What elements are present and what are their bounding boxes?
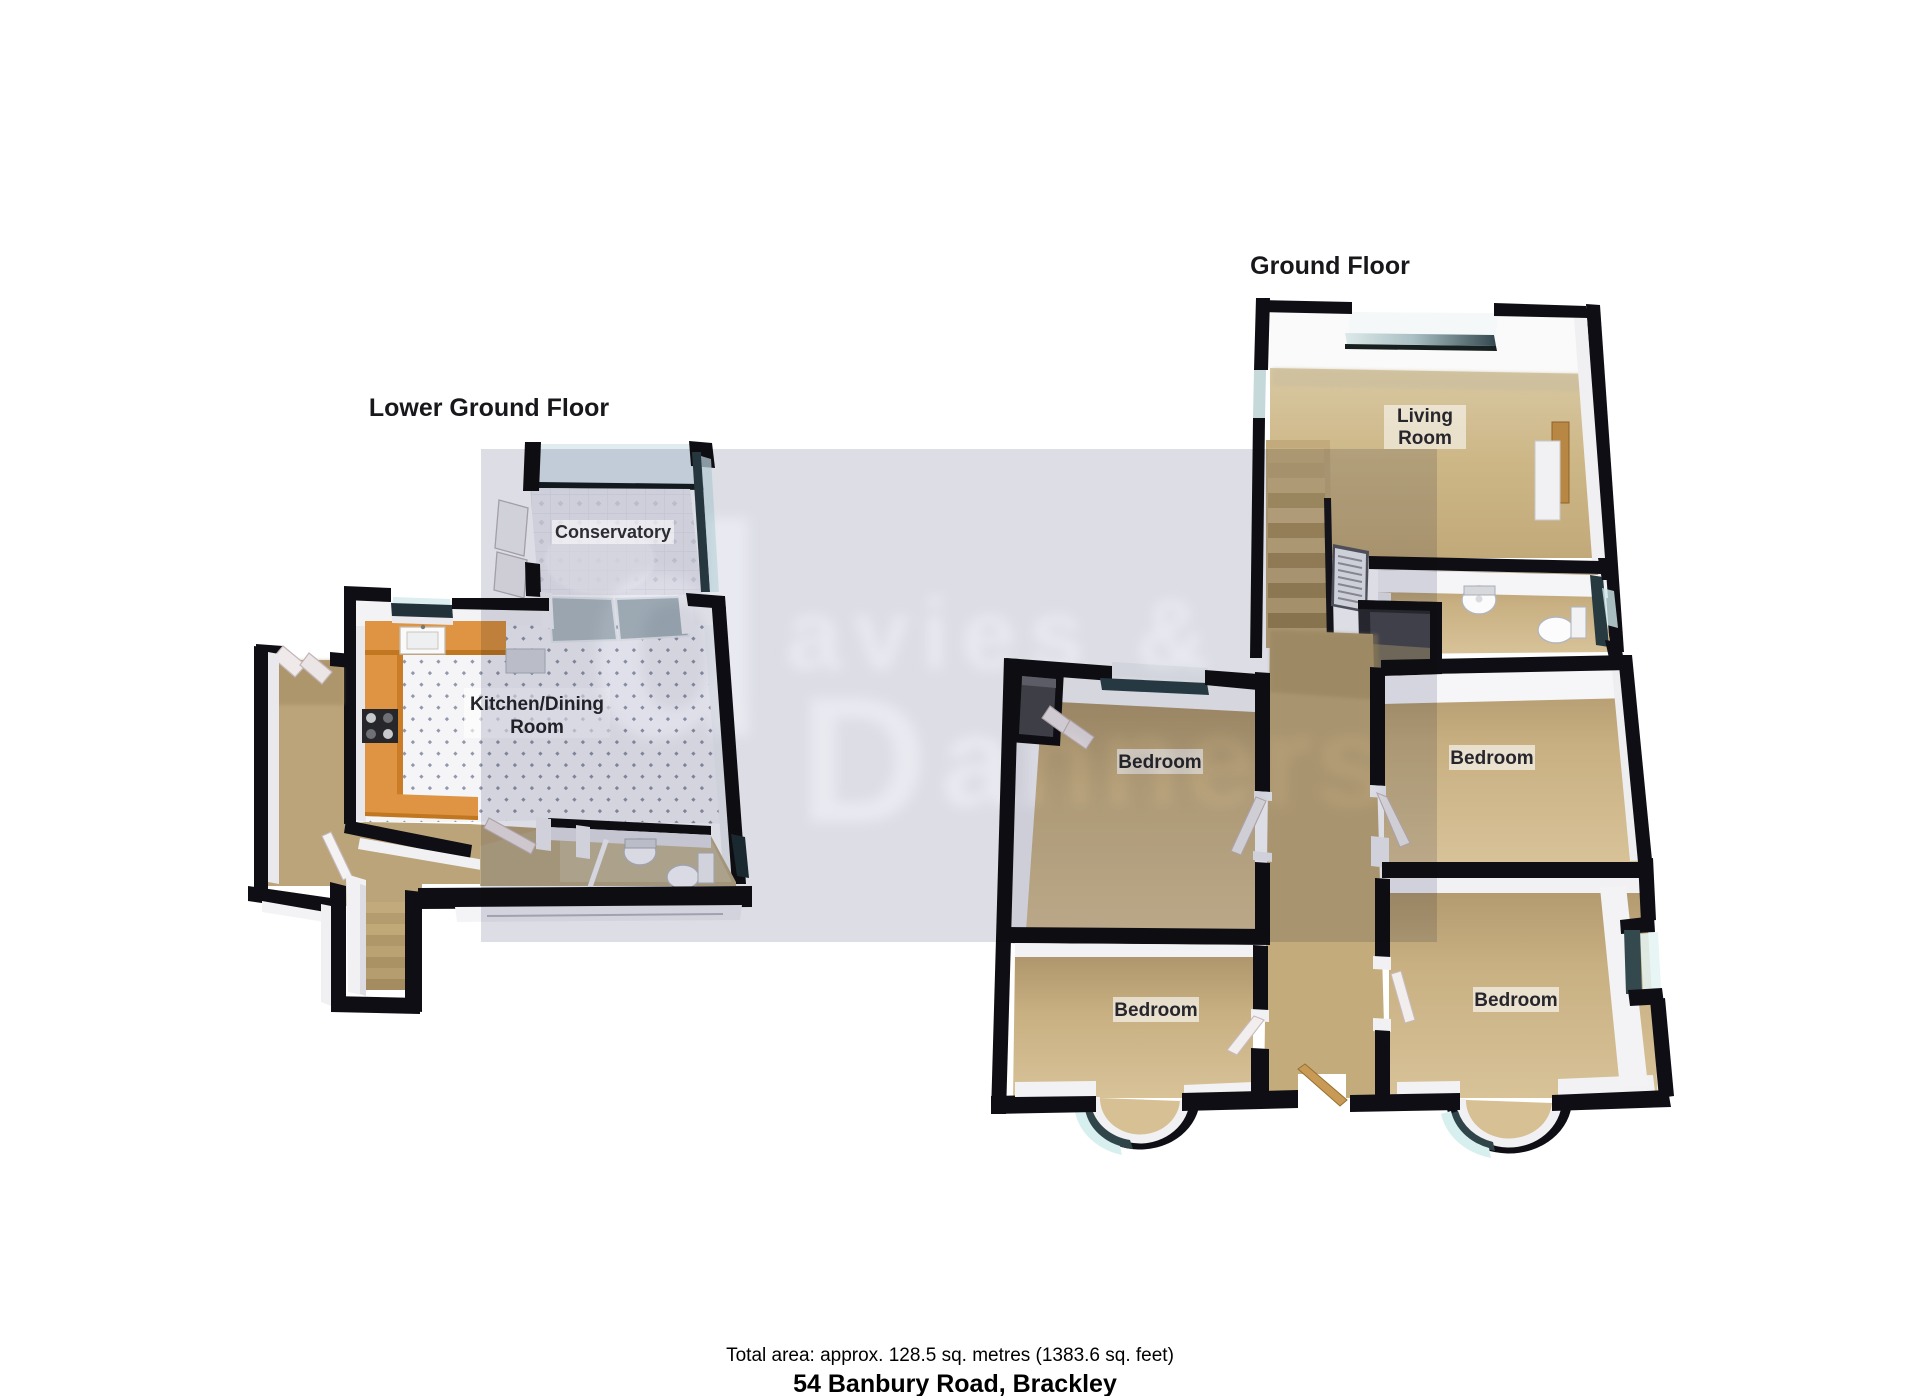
svg-text:Lower Ground Floor: Lower Ground Floor (369, 394, 610, 422)
svg-text:54 Banbury Road, Brackley: 54 Banbury Road, Brackley (793, 1370, 1117, 1396)
svg-text:Total area: approx. 128.5 sq.: Total area: approx. 128.5 sq. metres (13… (726, 1345, 1174, 1366)
svg-text:Bedroom: Bedroom (1450, 748, 1533, 769)
svg-text:Bedroom: Bedroom (1474, 990, 1557, 1011)
svg-text:Room: Room (1398, 428, 1452, 449)
svg-text:Ground Floor: Ground Floor (1250, 252, 1410, 280)
svg-text:anners: anners (941, 688, 1391, 834)
svg-text:d: d (586, 463, 769, 799)
svg-text:Bedroom: Bedroom (1114, 1000, 1197, 1021)
svg-text:Conservatory: Conservatory (555, 522, 671, 542)
svg-text:Living: Living (1397, 406, 1453, 427)
svg-text:D: D (798, 660, 928, 861)
